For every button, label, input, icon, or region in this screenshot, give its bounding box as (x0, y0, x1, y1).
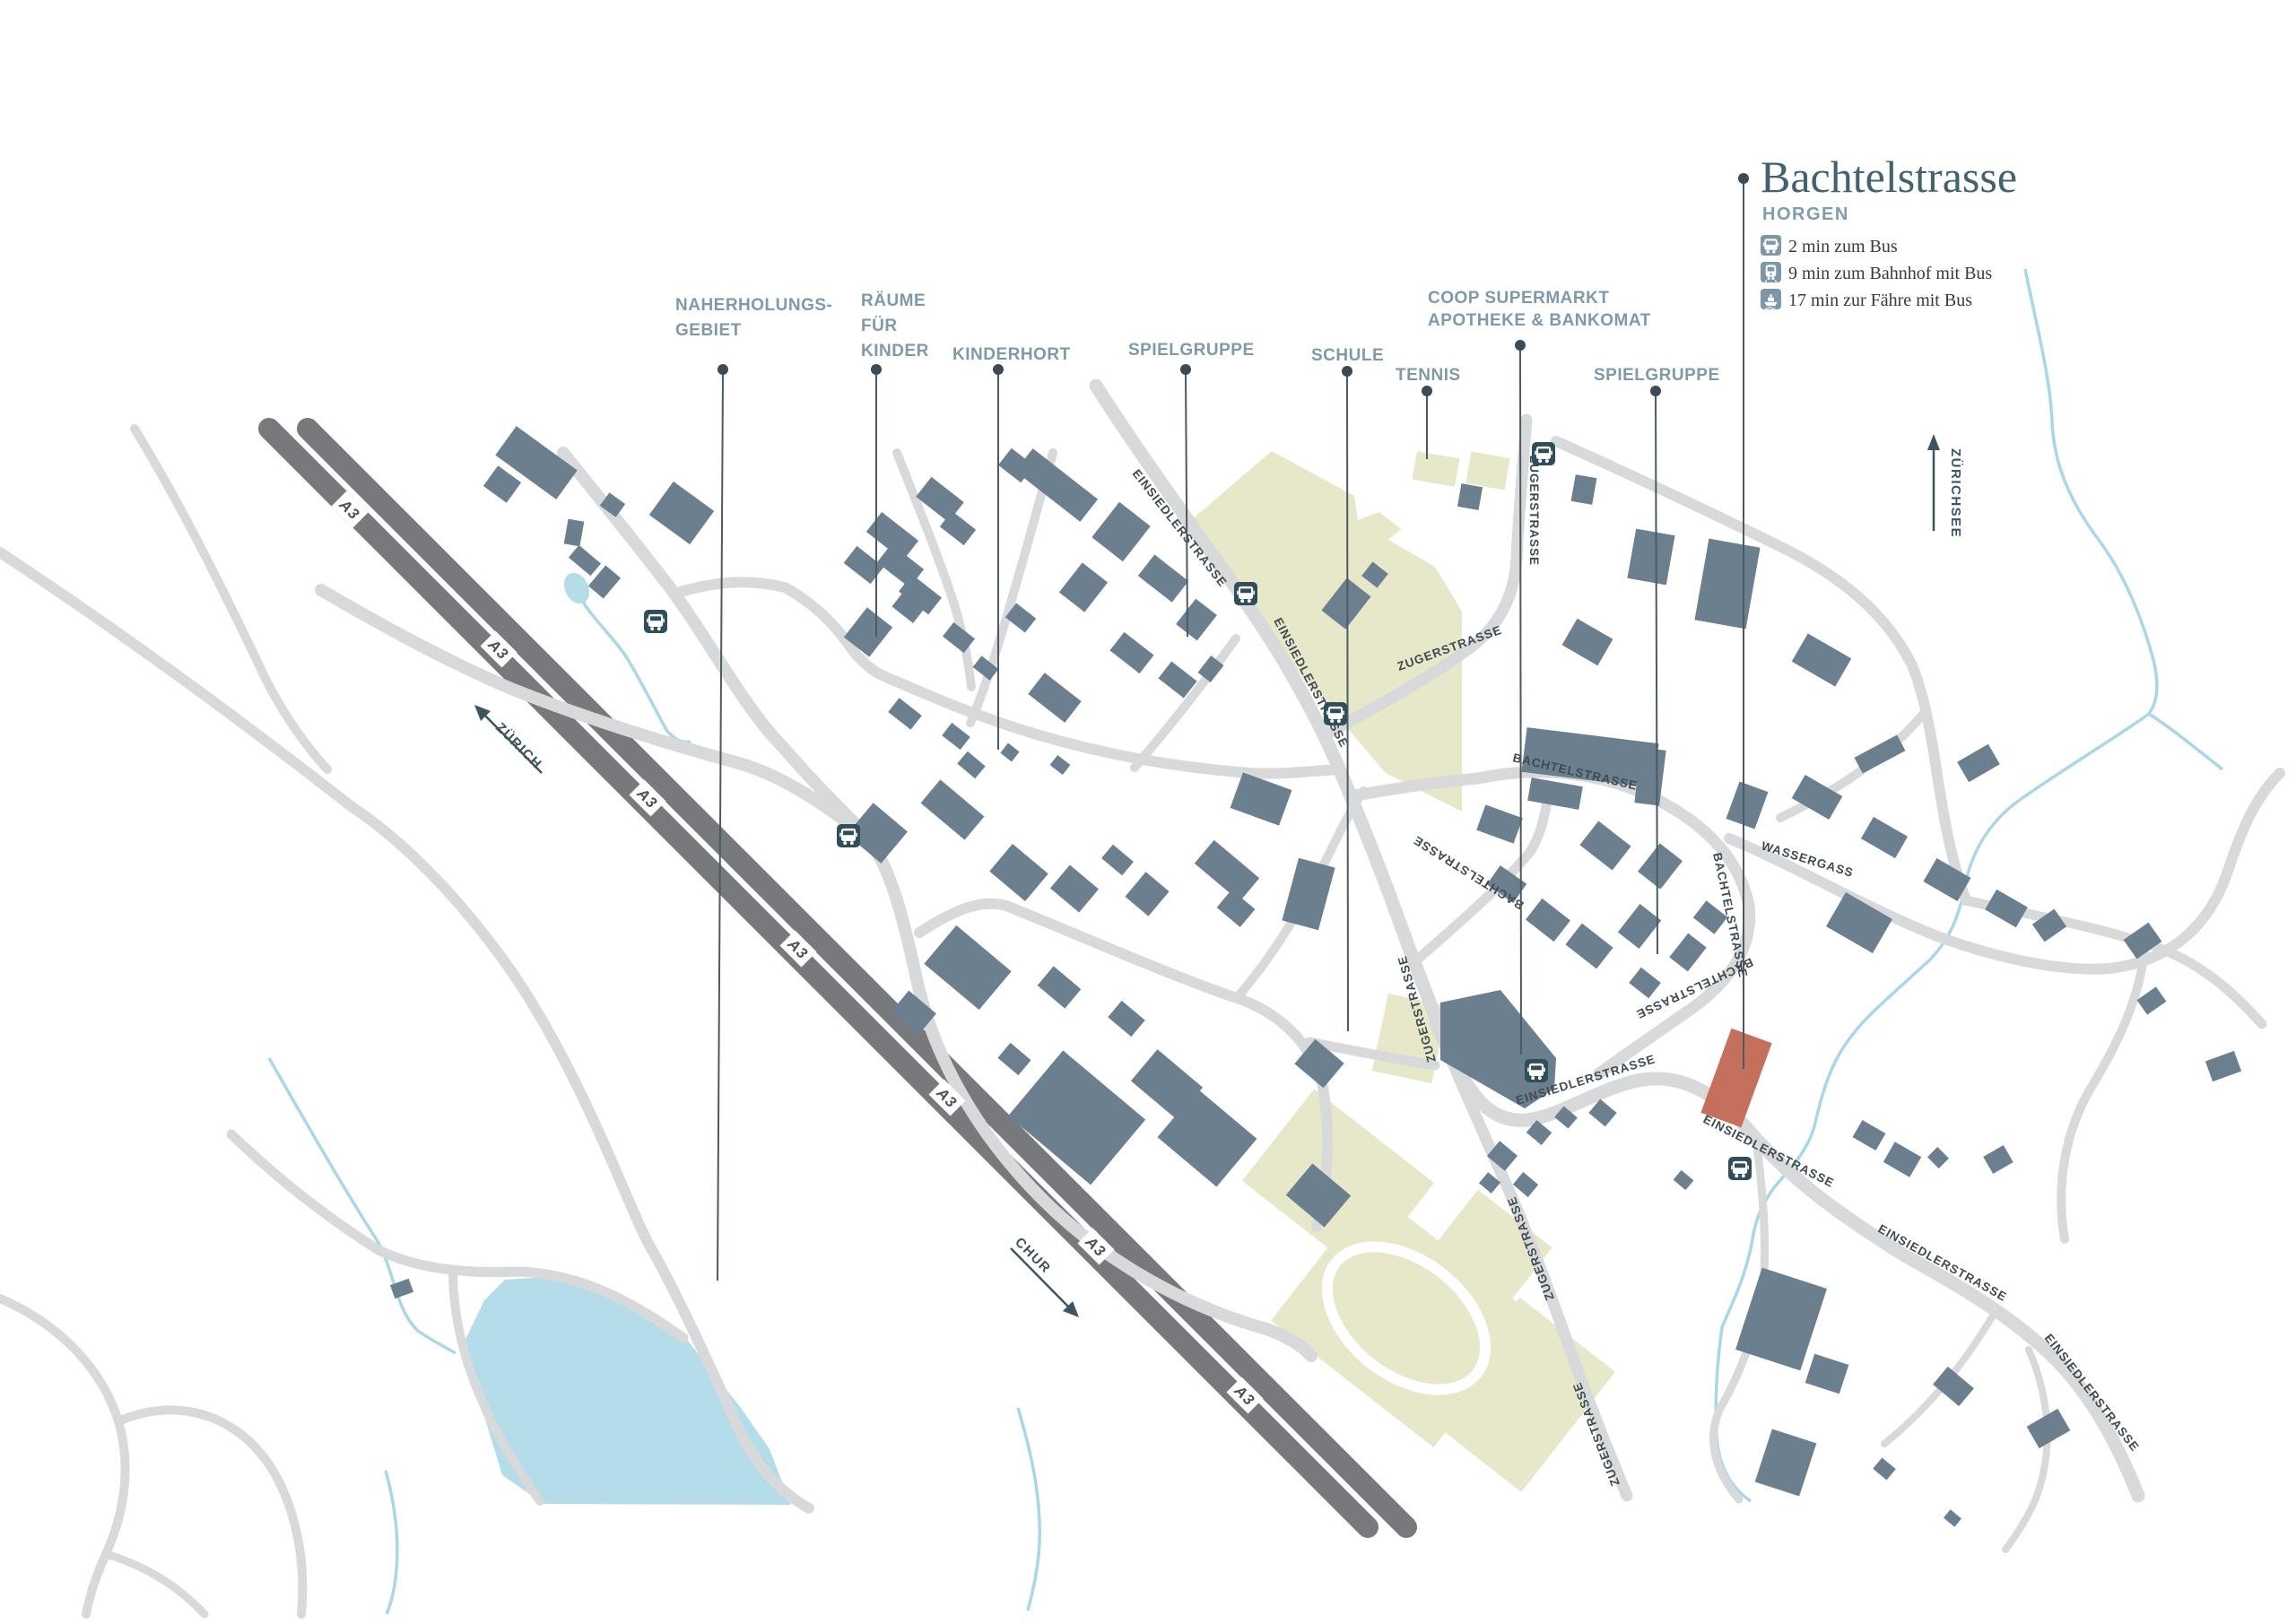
bus-stop-icon (837, 824, 860, 847)
leader-line (1520, 349, 1521, 1055)
leader-dots-layer (717, 173, 1749, 396)
school-grounds (1186, 451, 1462, 812)
building (1944, 1509, 1961, 1526)
building (564, 519, 585, 547)
bus-stop-icon (1324, 702, 1347, 725)
bus-stop-icon (644, 610, 667, 633)
street-label: ZUGERSTRASSE (1570, 1380, 1622, 1488)
poi-label-coop: APOTHEKE & BANKOMAT (1428, 311, 1651, 330)
building (1195, 840, 1259, 901)
lake (460, 1275, 791, 1505)
legend-label: 9 min zum Bahnhof mit Bus (1788, 264, 1992, 283)
poi-label-spielgruppe-west: SPIELGRUPPE (1128, 341, 1255, 360)
building (1562, 619, 1613, 665)
street-label: ZUGERSTRASSE (1527, 456, 1541, 566)
building (1792, 633, 1851, 686)
building (2137, 986, 2167, 1014)
ferry-icon (1761, 289, 1781, 309)
tennis-court (1465, 451, 1510, 490)
legend-label: 17 min zur Fähre mit Bus (1788, 291, 1972, 310)
leader-line (1186, 373, 1187, 637)
leader-dot (717, 364, 728, 375)
poi-label-tennis: TENNIS (1396, 366, 1461, 385)
leader-dot (1422, 386, 1432, 396)
road (2005, 1350, 2048, 1550)
building (1091, 502, 1150, 561)
poi-label-naherholungsgebiet: NAHERHOLUNGS- (675, 296, 832, 315)
building (1957, 744, 2000, 783)
road (1556, 441, 1966, 900)
building (1618, 904, 1661, 949)
building (997, 1043, 1031, 1075)
poi-label-raeume-fuer-kinder: FÜR (861, 317, 898, 335)
building (569, 545, 601, 576)
bus-stop-icon (1525, 1059, 1548, 1082)
stream (269, 1058, 456, 1353)
building (1873, 1457, 1896, 1480)
building (924, 925, 1011, 1010)
leader-dot (1180, 364, 1191, 375)
building (921, 779, 985, 839)
building (1579, 821, 1631, 870)
direction-chur: CHUR (1011, 1235, 1079, 1317)
building (1015, 448, 1098, 522)
building (1826, 892, 1892, 953)
building (1571, 474, 1597, 505)
building (844, 546, 884, 584)
train-icon (1761, 262, 1781, 282)
stream (2149, 714, 2222, 769)
building (1457, 483, 1483, 510)
road (0, 1298, 126, 1614)
building (1854, 734, 1905, 773)
poi-label-naherholungsgebiet: GEBIET (675, 321, 742, 340)
building (483, 465, 521, 502)
page-subtitle: HORGEN (1762, 204, 1849, 224)
direction-label: ZÜRICH (492, 720, 544, 772)
roads-layer (0, 386, 2280, 1614)
building (1755, 1429, 1817, 1496)
leader-dot (1738, 173, 1749, 184)
building (943, 622, 975, 653)
building (1565, 924, 1613, 969)
direction-zuerichsee: ZÜRICHSEE (1927, 434, 1963, 538)
building (1038, 966, 1082, 1008)
building (1101, 845, 1134, 876)
building (2027, 1409, 2071, 1448)
poi-label-kinderhort: KINDERHORT (952, 345, 1071, 364)
road (2061, 943, 2145, 1239)
building (1638, 843, 1683, 889)
building (1050, 755, 1071, 775)
poi-label-schule: SCHULE (1311, 346, 1384, 365)
building (1629, 968, 1661, 999)
leader-dot (993, 364, 1004, 375)
legend-row: 17 min zur Fähre mit Bus (1761, 289, 1972, 310)
building (1028, 673, 1081, 723)
building (1176, 599, 1217, 641)
building (1125, 872, 1169, 916)
highway-carriageway (269, 429, 1368, 1527)
building (1927, 1147, 1949, 1168)
leader-line (1347, 375, 1348, 1031)
building (1805, 1354, 1849, 1394)
direction-label: ZÜRICHSEE (1948, 448, 1963, 538)
legend-row: 9 min zum Bahnhof mit Bus (1761, 262, 1992, 283)
building (1476, 804, 1523, 843)
building (649, 482, 714, 544)
building (1853, 1120, 1886, 1151)
building (1726, 782, 1769, 829)
legend-label: 2 min zum Bus (1788, 237, 1898, 256)
poi-label-raeume-fuer-kinder: RÄUME (861, 291, 926, 310)
poi-label-coop: COOP SUPERMARKT (1428, 289, 1609, 308)
building (1000, 743, 1019, 762)
bus-stop-icon (1728, 1157, 1752, 1180)
map-page: EINSIEDLERSTRASSE EINSIEDLERSTRASSE EINS… (0, 0, 2296, 1624)
street-label: EINSIEDLERSTRASSE (1876, 1222, 2010, 1305)
arrow-icon (1927, 434, 1940, 450)
building (1883, 1142, 1921, 1177)
road (118, 1410, 302, 1614)
page-title: Bachtelstrasse (1761, 152, 2017, 202)
building (1674, 1170, 1694, 1190)
bus-stop-icon (1532, 442, 1555, 465)
building (1694, 539, 1760, 630)
tennis-court (1413, 451, 1460, 487)
building (1231, 772, 1292, 825)
building (942, 723, 970, 750)
building (989, 844, 1048, 901)
building (957, 751, 985, 779)
property-building (1700, 1029, 1771, 1127)
map-canvas: EINSIEDLERSTRASSE EINSIEDLERSTRASSE EINS… (0, 0, 2296, 1624)
bus-icon (1761, 235, 1781, 256)
bus-stop-icon (1234, 582, 1257, 605)
building (1983, 1145, 2013, 1174)
legend-row: 2 min zum Bus (1761, 235, 1898, 256)
building (1109, 632, 1153, 673)
building (1527, 777, 1583, 810)
legend: 2 min zum Bus 9 min zum Bahnhof mit Bus … (1761, 235, 1992, 310)
stream (1018, 1408, 1039, 1611)
building (1059, 562, 1108, 612)
building (1138, 554, 1188, 602)
leader-dot (1650, 386, 1661, 396)
direction-zurich: ZÜRICH (474, 705, 545, 773)
building (1933, 1367, 1974, 1406)
stream (386, 1471, 397, 1614)
building (1985, 890, 2028, 928)
building (1217, 890, 1256, 927)
building (1282, 858, 1335, 930)
poi-labels-layer: NAHERHOLUNGS- GEBIET RÄUME FÜR KINDER KI… (675, 289, 1720, 385)
building (1513, 1172, 1538, 1197)
building (1526, 899, 1570, 942)
leader-dot (1342, 366, 1352, 377)
pond (560, 569, 595, 608)
building (1050, 864, 1099, 912)
title-block: Bachtelstrasse HORGEN 2 min zum Bus 9 mi… (1761, 152, 2017, 310)
poi-label-spielgruppe-ost: SPIELGRUPPE (1594, 366, 1720, 385)
building (2205, 1051, 2241, 1081)
poi-label-raeume-fuer-kinder: KINDER (861, 342, 929, 360)
leader-dot (1515, 340, 1526, 351)
leader-dot (871, 364, 882, 375)
building (888, 698, 922, 729)
building (1108, 1001, 1144, 1037)
building (1861, 817, 1908, 858)
building (1669, 934, 1706, 972)
road (106, 1554, 204, 1614)
building (1627, 529, 1674, 586)
